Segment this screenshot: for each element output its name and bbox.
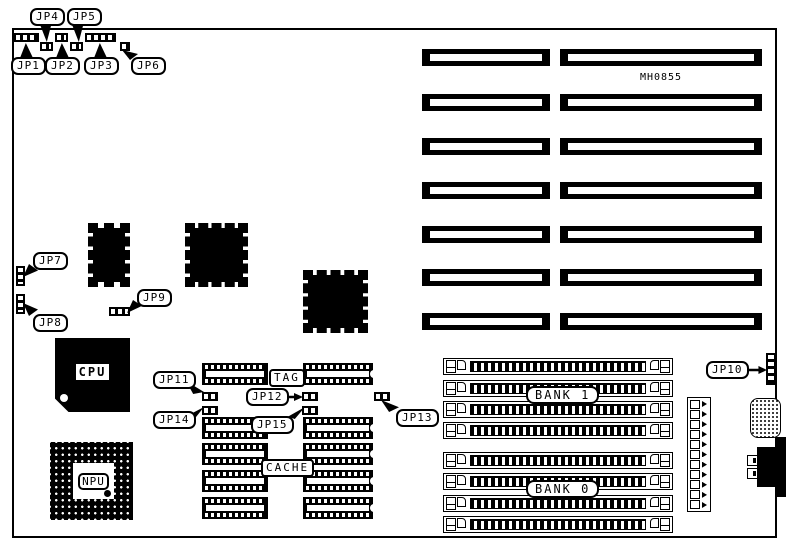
power-connector bbox=[687, 397, 711, 512]
jp5-jumper bbox=[70, 42, 83, 51]
jp12-jumper bbox=[302, 392, 318, 401]
isa-slot-segment bbox=[422, 269, 550, 286]
npu-label: NPU bbox=[78, 473, 109, 490]
dip-socket-row bbox=[202, 443, 268, 465]
component-dotted bbox=[750, 398, 781, 438]
isa-slot-segment bbox=[422, 94, 550, 111]
simm-socket bbox=[443, 516, 673, 533]
isa-slot-segment bbox=[422, 226, 550, 243]
jp12-callout: JP12 bbox=[246, 388, 289, 406]
isa-slot-segment bbox=[560, 269, 762, 286]
dip-socket-row bbox=[202, 497, 268, 519]
jp11-jumper bbox=[202, 392, 218, 401]
isa-slot-segment bbox=[560, 94, 762, 111]
bank1-label: BANK 1 bbox=[526, 386, 599, 404]
motherboard-diagram: MH0855 CPU NPU TAG CACHE bbox=[0, 0, 791, 549]
jp4-jumper bbox=[40, 42, 53, 51]
qfp-chip bbox=[185, 223, 248, 287]
qfp-chip bbox=[303, 270, 368, 333]
isa-slot-segment bbox=[560, 313, 762, 330]
isa-slot-segment bbox=[422, 138, 550, 155]
bank0-label: BANK 0 bbox=[526, 480, 599, 498]
isa-slot-segment bbox=[422, 182, 550, 199]
jp2-callout: JP2 bbox=[45, 57, 80, 75]
jp3-callout: JP3 bbox=[84, 57, 119, 75]
jp4-callout: JP4 bbox=[30, 8, 65, 26]
cpu-pin1-dot bbox=[60, 394, 68, 402]
connector-port bbox=[747, 468, 758, 479]
jp1-callout: JP1 bbox=[11, 57, 46, 75]
jp10-callout: JP10 bbox=[706, 361, 749, 379]
jp13-jumper bbox=[374, 392, 390, 401]
jp14-jumper bbox=[202, 406, 218, 415]
dip-socket-row bbox=[303, 363, 373, 385]
jp10-jumper bbox=[766, 353, 776, 385]
jp14-callout: JP14 bbox=[153, 411, 196, 429]
dip-socket-row bbox=[303, 497, 373, 519]
isa-slot-segment bbox=[560, 138, 762, 155]
dip-socket-row bbox=[202, 470, 268, 492]
isa-slot-segment bbox=[560, 226, 762, 243]
dip-socket-row bbox=[202, 363, 268, 385]
jp15-callout: JP15 bbox=[251, 416, 294, 434]
npu-socket: NPU bbox=[50, 442, 133, 520]
jp7-callout: JP7 bbox=[33, 252, 68, 270]
jp9-callout: JP9 bbox=[137, 289, 172, 307]
isa-slot-segment bbox=[560, 182, 762, 199]
jp6-jumper bbox=[120, 42, 130, 51]
jp5-callout: JP5 bbox=[67, 8, 102, 26]
jp2-jumper bbox=[55, 33, 68, 42]
simm-socket bbox=[443, 422, 673, 439]
connector-port bbox=[747, 455, 758, 466]
part-number: MH0855 bbox=[633, 72, 689, 83]
jp8-callout: JP8 bbox=[33, 314, 68, 332]
isa-slot-segment bbox=[560, 49, 762, 66]
npu-pin1-dot bbox=[104, 490, 111, 497]
simm-socket bbox=[443, 358, 673, 375]
qfp-chip bbox=[88, 223, 130, 287]
tag-label: TAG bbox=[269, 369, 305, 387]
jp3-jumper bbox=[85, 33, 116, 42]
cpu-label: CPU bbox=[76, 364, 110, 380]
jp13-callout: JP13 bbox=[396, 409, 439, 427]
simm-socket bbox=[443, 452, 673, 469]
jp11-callout: JP11 bbox=[153, 371, 196, 389]
cpu-chip: CPU bbox=[55, 338, 130, 412]
jp9-jumper bbox=[109, 307, 130, 316]
isa-slot-segment bbox=[422, 49, 550, 66]
isa-slot-segment bbox=[422, 313, 550, 330]
jp6-callout: JP6 bbox=[131, 57, 166, 75]
jp1-jumper bbox=[14, 33, 39, 42]
npu-socket-center: NPU bbox=[73, 463, 114, 499]
cache-label: CACHE bbox=[261, 459, 314, 477]
dip-socket-row bbox=[303, 417, 373, 439]
